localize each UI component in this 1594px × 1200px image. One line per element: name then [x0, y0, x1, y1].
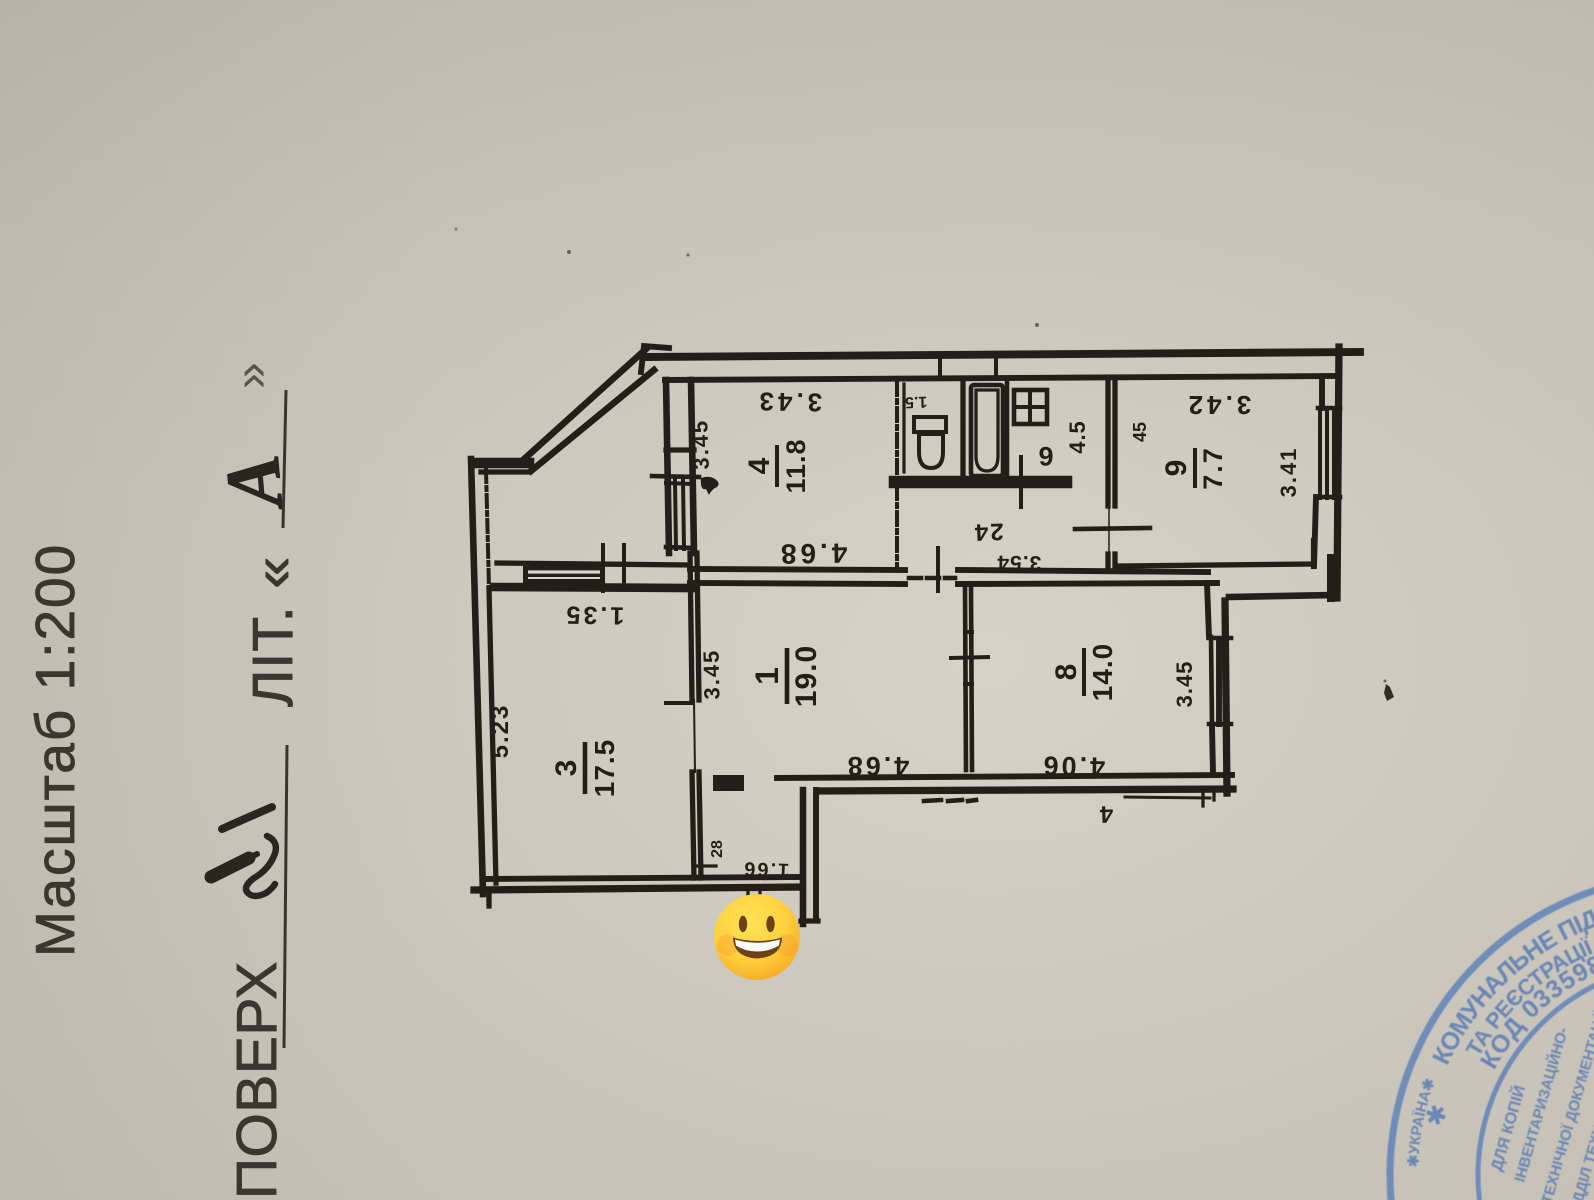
- svg-text:3.42: 3.42: [1185, 390, 1252, 420]
- svg-text:8: 8: [1050, 664, 1083, 681]
- svg-text:4.5: 4.5: [1065, 420, 1090, 454]
- svg-text:»: »: [225, 362, 278, 389]
- svg-text:4.68: 4.68: [845, 751, 910, 781]
- svg-text:17.5: 17.5: [589, 739, 620, 798]
- svg-text:45: 45: [1130, 422, 1150, 442]
- svg-text:1.35: 1.35: [563, 600, 624, 629]
- svg-text:5.23: 5.23: [487, 704, 514, 759]
- svg-text:3.45: 3.45: [699, 649, 725, 700]
- svg-text:4: 4: [743, 457, 776, 474]
- svg-text:1: 1: [749, 667, 785, 685]
- svg-text:7.7: 7.7: [1198, 446, 1228, 490]
- svg-text:14.0: 14.0: [1087, 643, 1118, 702]
- svg-text:28: 28: [709, 840, 726, 858]
- svg-text:1.66: 1.66: [742, 857, 790, 881]
- svg-text:9: 9: [1160, 460, 1193, 477]
- svg-text:19.0: 19.0: [790, 645, 823, 707]
- svg-text:4.06: 4.06: [1040, 750, 1105, 781]
- svg-text:6: 6: [1038, 441, 1053, 471]
- svg-text:4.68: 4.68: [777, 537, 848, 569]
- svg-text:3.45: 3.45: [687, 418, 714, 470]
- svg-text:4: 4: [1099, 800, 1114, 827]
- svg-text:1.5: 1.5: [905, 393, 928, 411]
- svg-text:11.8: 11.8: [781, 438, 811, 493]
- svg-text:3: 3: [550, 760, 583, 777]
- svg-text:3.43: 3.43: [755, 386, 822, 417]
- svg-text:ПОВЕРХ: ПОВЕРХ: [225, 961, 289, 1199]
- svg-text:24: 24: [972, 517, 1004, 545]
- svg-text:3.54: 3.54: [996, 551, 1041, 575]
- svg-text:ЛІТ. «: ЛІТ. «: [241, 556, 305, 707]
- svg-text:Масштаб 1:200: Масштаб 1:200: [24, 543, 86, 957]
- svg-text:3.41: 3.41: [1276, 447, 1301, 498]
- svg-text:3.45: 3.45: [1172, 661, 1197, 708]
